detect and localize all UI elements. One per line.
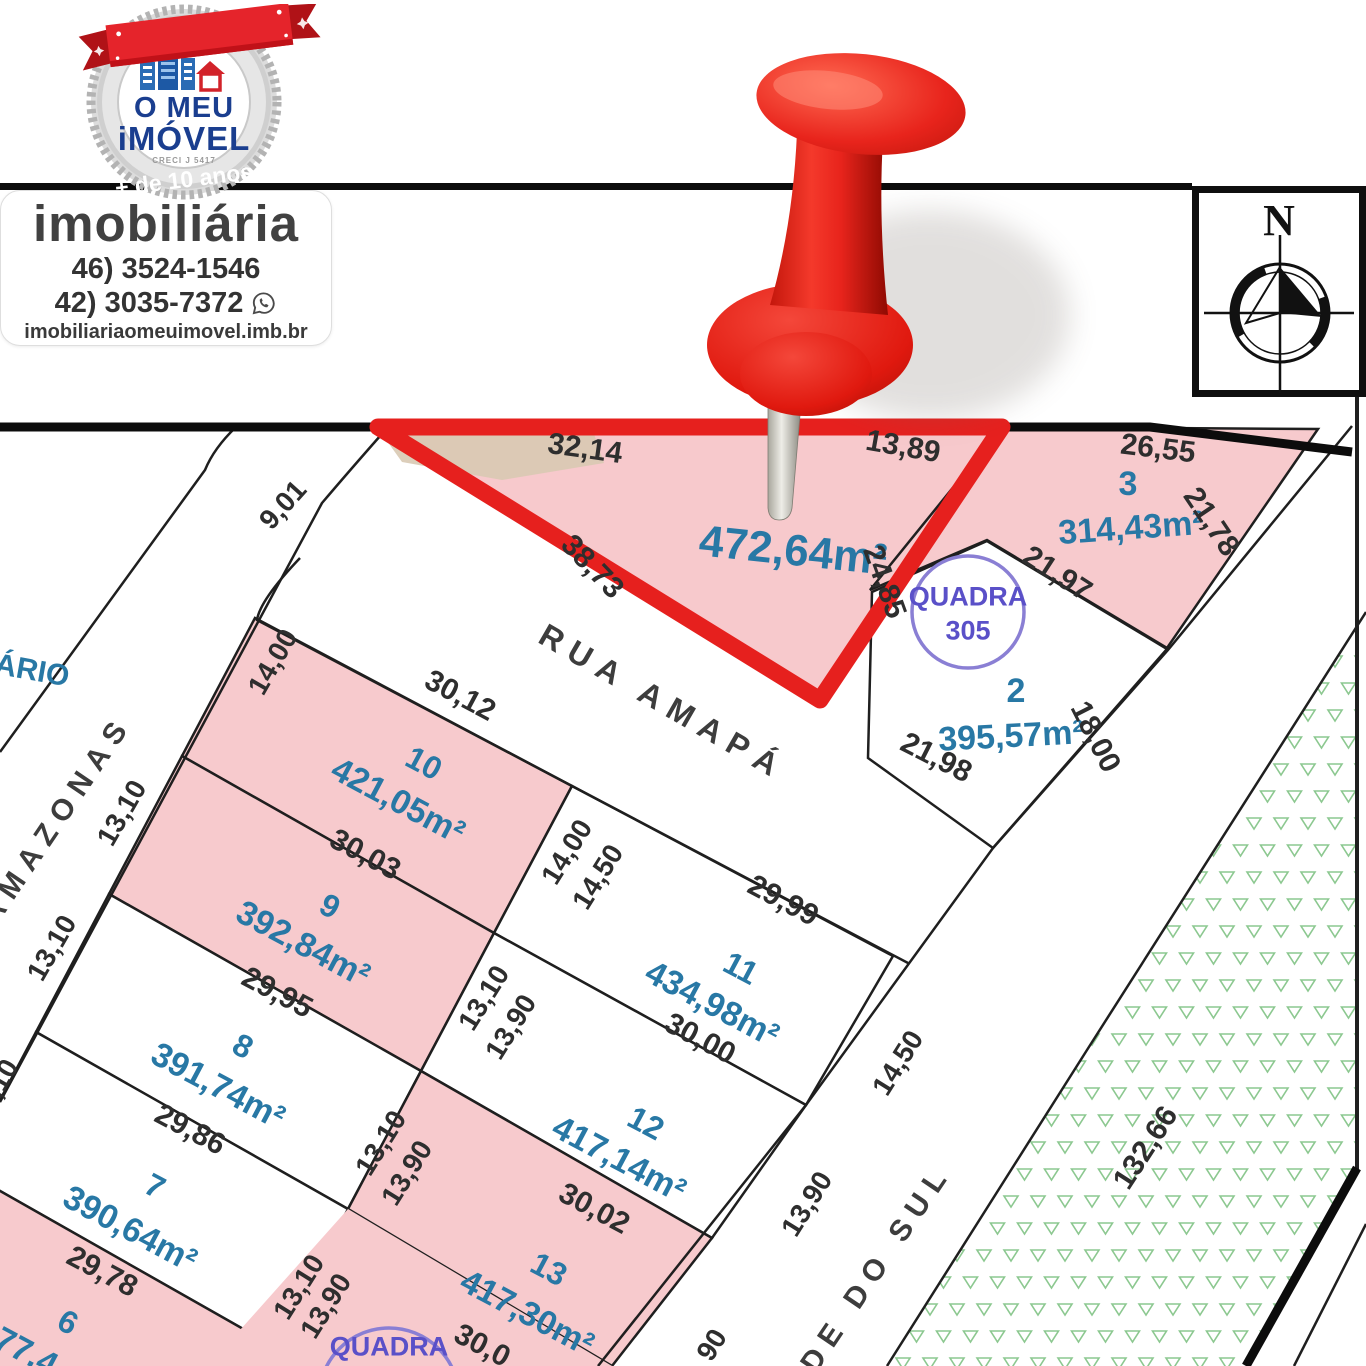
- flyer-canvas: imobiliária 46) 3524-1546 42) 3035-7372 …: [0, 0, 1366, 1366]
- ribbon-banner: [76, 4, 324, 76]
- phone-number-2: 42) 3035-7372: [55, 287, 244, 320]
- website-url: imobiliariaomeuimovel.imb.br: [1, 321, 331, 344]
- badge-title-line2: iMÓVEL: [118, 120, 251, 158]
- whatsapp-icon: [250, 290, 277, 317]
- compass-rose-icon: [1204, 235, 1354, 395]
- phone-number-1: 46) 3524-1546: [1, 253, 331, 286]
- logo-badge: O MEU iMÓVEL CRECI J 5417 + de 10 anos: [76, 4, 292, 220]
- compass-box: N: [1192, 186, 1366, 397]
